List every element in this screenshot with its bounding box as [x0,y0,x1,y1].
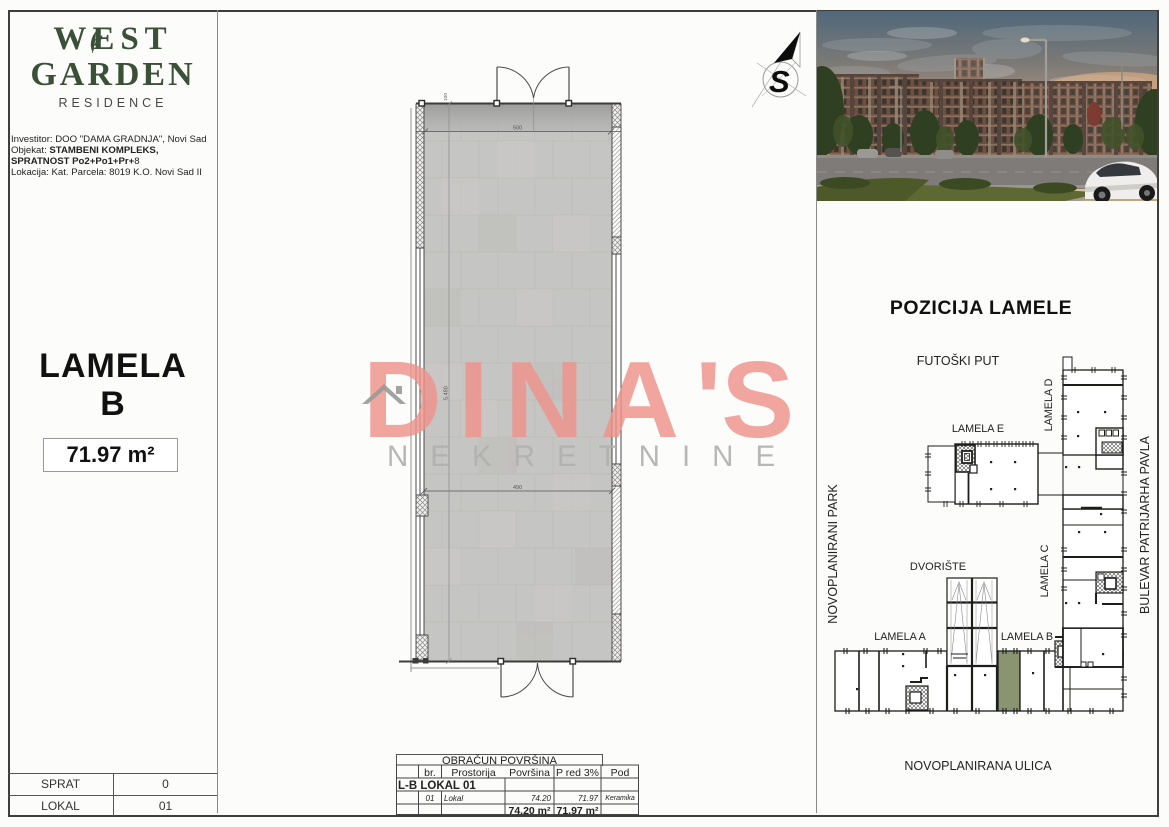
svg-text:NOVOPLANIRANA ULICA: NOVOPLANIRANA ULICA [904,759,1052,773]
svg-text:490: 490 [513,485,522,491]
svg-text:100: 100 [443,93,449,101]
svg-text:NOVOPLANIRANI PARK: NOVOPLANIRANI PARK [826,484,840,624]
svg-text:FUTOŠKI PUT: FUTOŠKI PUT [917,353,1000,368]
svg-text:LAMELA A: LAMELA A [874,631,926,643]
svg-text:POZICIJA LAMELE: POZICIJA LAMELE [890,297,1072,319]
svg-text:LAMELA B: LAMELA B [1001,631,1053,643]
svg-text:LAMELA C: LAMELA C [1039,544,1051,597]
svg-text:LAMELA D: LAMELA D [1043,378,1055,431]
svg-text:LAMELA E: LAMELA E [952,423,1004,435]
svg-text:BULEVAR PATRIJARHA PAVLA: BULEVAR PATRIJARHA PAVLA [1138,435,1152,614]
svg-text:500: 500 [513,126,522,132]
svg-text:DVORIŠTE: DVORIŠTE [910,560,966,573]
svg-text:S: S [769,64,790,99]
